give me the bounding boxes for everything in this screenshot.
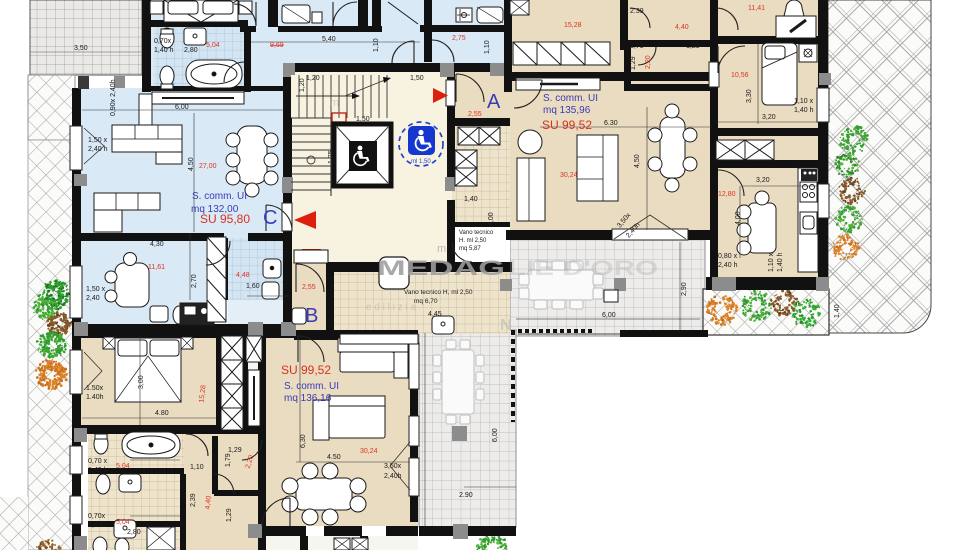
svg-text:4,45: 4,45 [428,311,442,318]
svg-text:mq 136,16: mq 136,16 [284,393,332,404]
svg-text:3,30: 3,30 [746,89,753,103]
svg-text:2.90: 2.90 [459,492,473,499]
svg-text:1,50 x: 1,50 x [86,286,106,293]
svg-text:SU 99,52: SU 99,52 [542,118,592,132]
svg-text:4,40: 4,40 [675,24,689,31]
svg-text:1,20: 1,20 [299,78,306,92]
svg-text:6,00: 6,00 [602,312,616,319]
svg-text:1,79: 1,79 [225,453,232,467]
svg-text:1.40h: 1.40h [86,394,104,401]
svg-text:3,50x: 3,50x [384,463,402,470]
svg-text:1,50 x: 1,50 x [88,137,108,144]
svg-text:15,28: 15,28 [564,22,582,29]
svg-text:1,10 x: 1,10 x [794,98,814,105]
svg-text:3,20: 3,20 [762,114,776,121]
svg-text:27,00: 27,00 [199,163,217,170]
svg-text:1,50: 1,50 [410,75,424,82]
svg-text:4,00: 4,00 [488,212,495,226]
svg-text:2,90: 2,90 [681,282,688,296]
svg-text:2,20: 2,20 [645,55,652,69]
svg-text:1,29: 1,29 [226,508,233,522]
svg-text:1,40 h: 1,40 h [777,252,784,272]
svg-text:6.30: 6.30 [604,120,618,127]
svg-text:1,40: 1,40 [834,304,841,318]
svg-text:SU 99,52: SU 99,52 [281,363,331,377]
svg-text:1,40 h: 1,40 h [154,47,174,54]
svg-text:S. comm. UI: S. comm. UI [192,191,247,202]
svg-text:1,50: 1,50 [356,116,370,123]
svg-text:4,50: 4,50 [634,154,641,168]
svg-text:30,24: 30,24 [360,448,378,455]
svg-text:mq 6,70: mq 6,70 [414,298,438,305]
svg-text:mq 5,87: mq 5,87 [459,246,481,252]
svg-text:S. comm. UI: S. comm. UI [543,93,598,104]
svg-text:2.39: 2.39 [630,8,644,15]
svg-text:C: C [263,207,277,229]
svg-text:12,80: 12,80 [718,191,736,198]
svg-text:0,70x: 0,70x [88,513,106,520]
svg-text:Vano tecnico: Vano tecnico [459,230,494,236]
svg-text:30,24: 30,24 [560,172,578,179]
svg-text:1,10: 1,10 [373,38,380,52]
svg-text:11,41: 11,41 [748,5,765,12]
svg-text:0,80 x: 0,80 x [718,253,738,260]
svg-text:3,50: 3,50 [74,45,88,52]
svg-text:1,29: 1,29 [228,447,242,454]
svg-text:mq 135,96: mq 135,96 [543,105,591,116]
svg-text:1,10 x: 1,10 x [768,252,775,272]
svg-text:4,40: 4,40 [205,495,213,509]
svg-text:LIE D'ORO: LIE D'ORO [508,257,658,280]
svg-text:SU 95,80: SU 95,80 [200,212,250,226]
svg-text:B: B [305,305,318,327]
svg-text:2,40 h: 2,40 h [718,262,738,269]
svg-text:2,70: 2,70 [191,274,198,288]
svg-text:4,00: 4,00 [735,211,742,225]
svg-text:S. comm. UI: S. comm. UI [284,381,339,392]
svg-text:1,40: 1,40 [464,196,478,203]
svg-text:1,40 h: 1,40 h [88,467,108,474]
svg-text:1,10: 1,10 [190,464,204,471]
svg-text:1,40h: 1,40h [88,522,106,529]
svg-text:4,30: 4,30 [150,241,164,248]
svg-text:1,79: 1,79 [630,43,644,50]
svg-text:ml 1,50: ml 1,50 [411,159,431,165]
svg-text:4.80: 4.80 [155,410,169,417]
svg-text:1.50x: 1.50x [86,385,104,392]
svg-text:3,20: 3,20 [756,177,770,184]
svg-text:5,04: 5,04 [206,42,220,49]
svg-text:MEDAG: MEDAG [377,257,505,280]
svg-text:1,29: 1,29 [686,43,700,50]
svg-text:10,56: 10,56 [731,72,749,79]
svg-text:6,30: 6,30 [300,434,307,448]
svg-text:N: N [500,317,512,334]
svg-text:2,80: 2,80 [127,529,141,536]
svg-text:6,00: 6,00 [492,428,499,442]
svg-text:m: m [330,97,339,109]
svg-text:m: m [437,243,446,255]
svg-text:Vano tecnico H, ml 2,50: Vano tecnico H, ml 2,50 [404,289,473,296]
svg-text:0,70 x: 0,70 x [88,458,108,465]
svg-text:6,00: 6,00 [175,104,189,111]
svg-text:4.50: 4.50 [327,454,341,461]
svg-text:1,20: 1,20 [306,75,320,82]
svg-text:4,48: 4,48 [236,272,250,279]
svg-text:0,90x 2,40h: 0,90x 2,40h [110,79,117,116]
svg-text:1,60: 1,60 [246,283,260,290]
svg-text:5,40: 5,40 [322,36,336,43]
svg-text:11,61: 11,61 [148,264,165,271]
svg-text:1,40 h: 1,40 h [794,107,814,114]
svg-text:2,40 h: 2,40 h [88,146,108,153]
svg-text:2,80: 2,80 [184,47,198,54]
svg-text:9,69: 9,69 [270,42,284,49]
svg-text:2,40h: 2,40h [384,473,402,480]
svg-text:2,40: 2,40 [86,295,100,302]
svg-text:2,55: 2,55 [302,284,316,291]
svg-text:2,75: 2,75 [452,35,466,42]
svg-text:4,50: 4,50 [188,157,195,171]
svg-text:2,55: 2,55 [468,111,482,118]
svg-text:e d i l i z i a: e d i l i z i a [366,302,416,313]
svg-text:3,00: 3,00 [138,375,145,389]
svg-text:1,29: 1,29 [630,56,637,70]
svg-text:5,04: 5,04 [116,463,130,470]
svg-text:2,39: 2,39 [190,493,197,507]
svg-text:H. ml 2,50: H. ml 2,50 [459,238,487,244]
svg-text:5,04: 5,04 [116,519,130,526]
svg-text:A: A [487,91,501,113]
svg-text:1,10: 1,10 [484,40,491,54]
svg-text:0,70x: 0,70x [154,38,172,45]
svg-text:1,75: 1,75 [328,150,335,164]
